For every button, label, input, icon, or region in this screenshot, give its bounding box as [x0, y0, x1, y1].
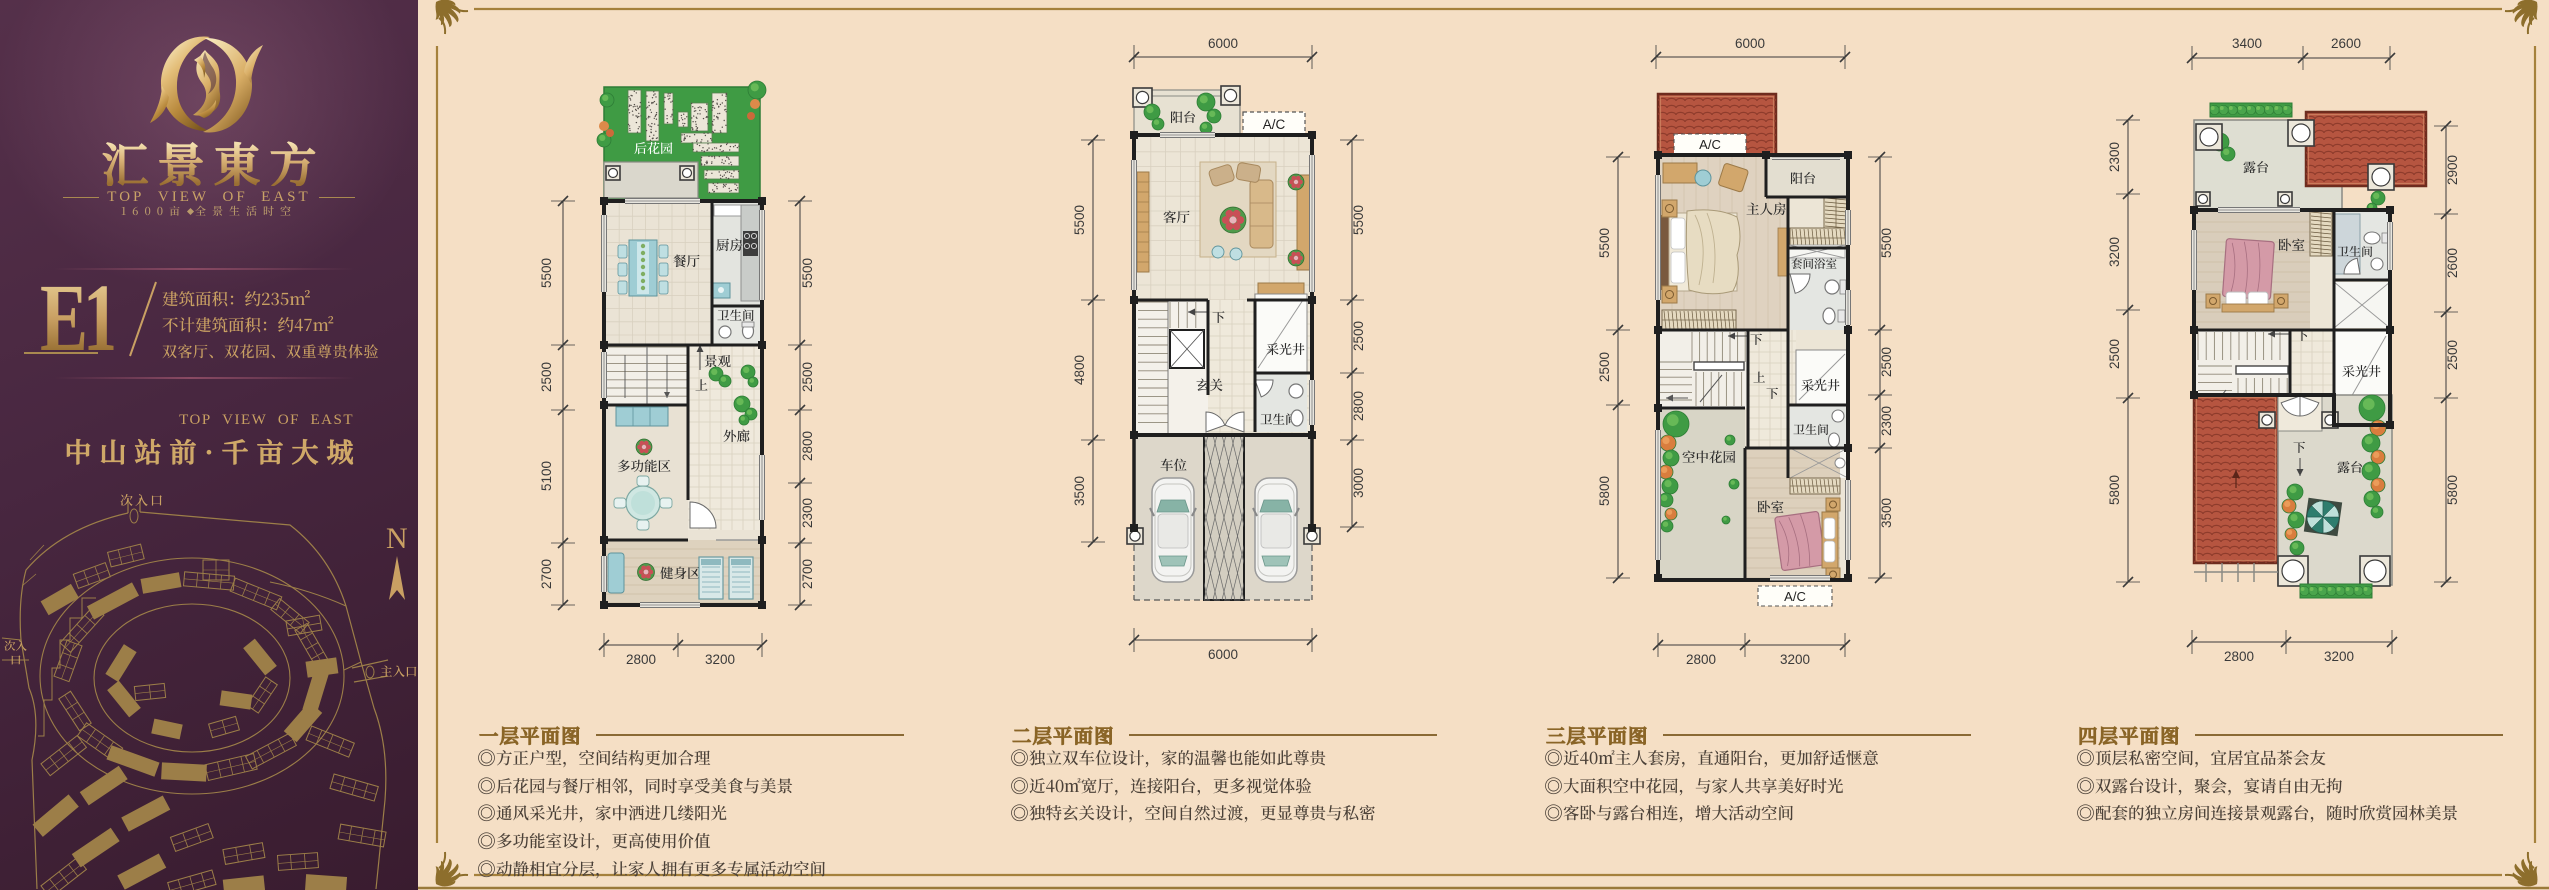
svg-text:3000: 3000 [1351, 468, 1366, 498]
svg-text:车位: 车位 [1160, 454, 1188, 474]
svg-text:A/C: A/C [1699, 137, 1721, 152]
svg-text:卫生间: 卫生间 [1793, 421, 1829, 438]
svg-text:空中花园: 空中花园 [1682, 446, 1736, 466]
svg-text:6000: 6000 [1208, 36, 1238, 51]
svg-text:下: 下 [1750, 330, 1763, 348]
svg-text:5100: 5100 [540, 461, 554, 491]
svg-text:2700: 2700 [540, 559, 554, 589]
svg-text:3500: 3500 [1072, 476, 1087, 506]
svg-text:2800: 2800 [1351, 391, 1366, 421]
svg-text:主人房: 主人房 [1746, 198, 1787, 218]
svg-text:采光井: 采光井 [2342, 361, 2381, 380]
svg-text:5800: 5800 [1597, 476, 1612, 506]
svg-text:A/C: A/C [1784, 589, 1806, 604]
svg-text:3200: 3200 [705, 652, 735, 667]
svg-text:2600: 2600 [2445, 248, 2460, 278]
svg-text:2500: 2500 [1597, 352, 1612, 382]
svg-text:餐厅: 餐厅 [673, 250, 701, 270]
svg-text:2500: 2500 [1879, 347, 1894, 377]
svg-text:A/C: A/C [1263, 117, 1286, 132]
svg-text:5500: 5500 [540, 258, 554, 288]
svg-text:3200: 3200 [2324, 649, 2354, 664]
svg-text:5500: 5500 [1879, 228, 1894, 258]
svg-text:2300: 2300 [1879, 406, 1894, 436]
svg-text:2600: 2600 [2331, 36, 2361, 51]
svg-text:2500: 2500 [800, 362, 815, 392]
svg-text:3400: 3400 [2232, 36, 2262, 51]
svg-text:6000: 6000 [1735, 36, 1765, 51]
svg-text:玄关: 玄关 [1196, 374, 1224, 394]
svg-text:下: 下 [1212, 307, 1225, 326]
svg-text:6000: 6000 [1208, 647, 1238, 662]
svg-text:上: 上 [695, 375, 708, 394]
svg-text:多功能区: 多功能区 [617, 455, 671, 475]
svg-text:2500: 2500 [540, 362, 554, 392]
svg-text:2800: 2800 [626, 652, 656, 667]
svg-text:采光井: 采光井 [1266, 339, 1305, 358]
svg-text:厨房: 厨房 [716, 234, 743, 254]
svg-text:2800: 2800 [1686, 652, 1716, 667]
svg-text:套间浴室: 套间浴室 [1791, 256, 1837, 272]
svg-text:2900: 2900 [2445, 155, 2460, 185]
svg-text:2300: 2300 [800, 498, 815, 528]
svg-text:下: 下 [2293, 438, 2306, 456]
svg-text:5500: 5500 [1351, 205, 1366, 235]
svg-text:健身区: 健身区 [660, 562, 701, 582]
svg-text:阳台: 阳台 [1170, 107, 1196, 126]
svg-text:卫生间: 卫生间 [717, 306, 755, 324]
svg-text:卫生间: 卫生间 [2337, 243, 2373, 260]
svg-text:客厅: 客厅 [1163, 206, 1191, 226]
svg-text:2300: 2300 [2107, 142, 2122, 172]
svg-text:露台: 露台 [2337, 457, 2363, 476]
svg-text:采光井: 采光井 [1801, 375, 1840, 394]
svg-text:卧室: 卧室 [1757, 496, 1784, 516]
svg-text:3200: 3200 [2107, 237, 2122, 267]
svg-text:3500: 3500 [1879, 498, 1894, 528]
svg-text:2800: 2800 [2224, 649, 2254, 664]
svg-text:上: 上 [1753, 368, 1766, 386]
svg-text:后花园: 后花园 [634, 138, 673, 157]
svg-text:5500: 5500 [1597, 228, 1612, 258]
svg-text:露台: 露台 [2243, 157, 2269, 176]
svg-text:5800: 5800 [2107, 475, 2122, 505]
svg-text:2700: 2700 [800, 559, 815, 589]
svg-text:阳台: 阳台 [1790, 168, 1816, 187]
svg-text:3200: 3200 [1780, 652, 1810, 667]
svg-text:5500: 5500 [800, 258, 815, 288]
svg-text:2800: 2800 [800, 431, 815, 461]
svg-text:卧室: 卧室 [2278, 234, 2305, 254]
svg-text:2500: 2500 [1351, 321, 1366, 351]
svg-text:5500: 5500 [1072, 205, 1087, 235]
svg-text:4800: 4800 [1072, 355, 1087, 385]
svg-text:外廊: 外廊 [723, 425, 751, 445]
svg-text:5800: 5800 [2445, 475, 2460, 505]
svg-text:2500: 2500 [2107, 339, 2122, 369]
svg-text:2500: 2500 [2445, 340, 2460, 370]
svg-text:下: 下 [1766, 384, 1779, 402]
